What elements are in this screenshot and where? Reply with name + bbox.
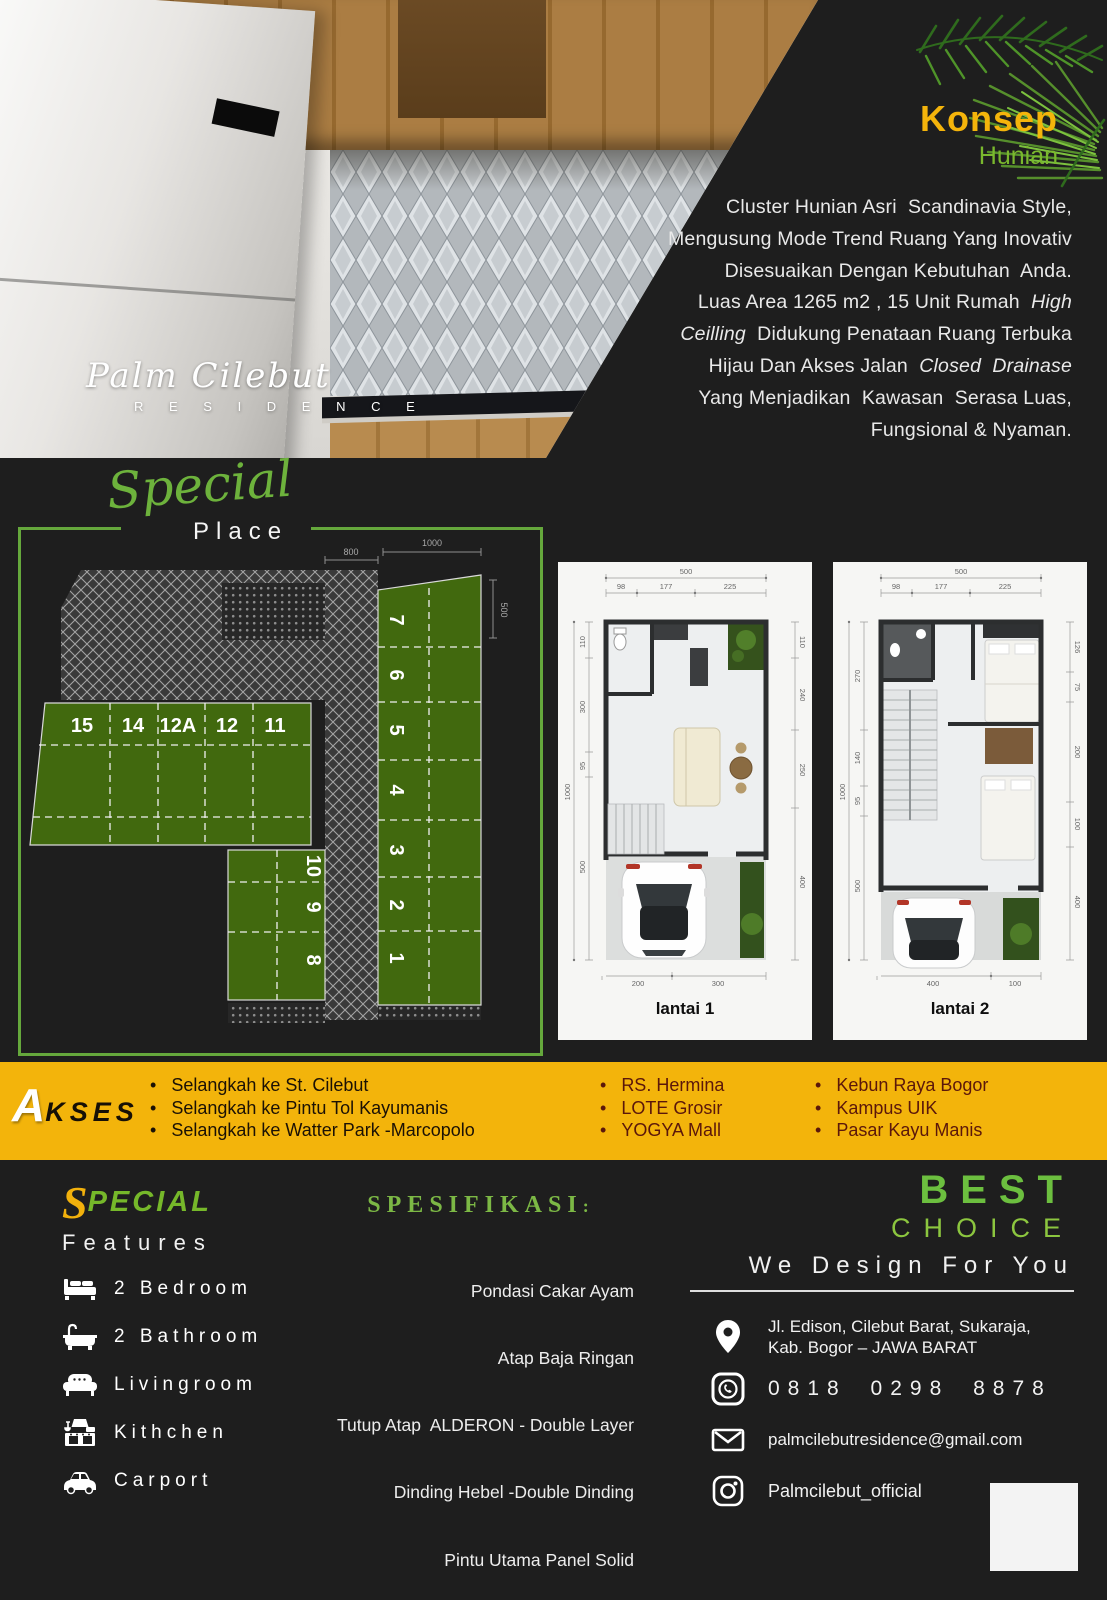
spec-item: Tutup Atap ALDERON - Double Layer bbox=[322, 1414, 634, 1436]
features-initial: S bbox=[62, 1177, 88, 1228]
contact-list: Jl. Edison, Cilebut Barat, Sukaraja, Kab… bbox=[690, 1316, 1074, 1511]
flyer-page: Palm Cilebut R E S I D E N C E Konsep Hu… bbox=[0, 0, 1107, 1600]
access-band: AKSES Selangkah ke St. Cilebut Selangkah… bbox=[0, 1062, 1107, 1160]
plot-label: 15 bbox=[71, 715, 93, 737]
specification-title-text: SPESIFIKASI bbox=[367, 1192, 582, 1218]
dim-label: 200 bbox=[1073, 746, 1082, 759]
car-top-view bbox=[618, 862, 710, 958]
konsep-title: Konsep bbox=[920, 98, 1058, 140]
dim-label: 400 bbox=[1073, 896, 1082, 909]
dim-label: 75 bbox=[1073, 683, 1082, 691]
access-list-2: RS. Hermina LOTE Grosir YOGYA Mall bbox=[600, 1074, 724, 1142]
feature-item: Livingroom bbox=[62, 1370, 262, 1400]
dim-label: 95 bbox=[578, 762, 587, 770]
dim-label: 177 bbox=[935, 582, 948, 591]
list-item: Kebun Raya Bogor bbox=[815, 1074, 988, 1097]
list-item: Selangkah ke Watter Park -Marcopolo bbox=[150, 1119, 475, 1142]
dim-label: 110 bbox=[798, 636, 807, 648]
mail-icon bbox=[710, 1420, 746, 1460]
dim-label: 225 bbox=[724, 582, 737, 591]
dim-label: 400 bbox=[798, 876, 807, 889]
paragraph-line: Cluster Hunian Asri Scandinavia Style, bbox=[592, 192, 1072, 224]
dim-label: 300 bbox=[712, 979, 725, 988]
dim-label: 500 bbox=[853, 880, 862, 893]
plot-label: 6 bbox=[385, 669, 407, 680]
dim-label: 100 bbox=[1073, 818, 1082, 831]
plot-label: 1 bbox=[385, 952, 407, 963]
plot-label: 9 bbox=[302, 901, 324, 912]
dim-label: 500 bbox=[955, 567, 968, 576]
features-title: SPECIAL bbox=[62, 1176, 262, 1229]
plot-label: 7 bbox=[385, 614, 407, 625]
specification-title: SPESIFIKASI: bbox=[322, 1192, 634, 1219]
site-plan-box: Special Place bbox=[18, 527, 543, 1056]
dim-label: 140 bbox=[853, 752, 862, 765]
paragraph-line: Yang Menjadikan Kawasan Serasa Luas, bbox=[592, 383, 1072, 415]
plot-label: 3 bbox=[385, 844, 407, 855]
list-item: Selangkah ke St. Cilebut bbox=[150, 1074, 475, 1097]
list-item: YOGYA Mall bbox=[600, 1119, 724, 1142]
dim-label: 126 bbox=[1073, 641, 1082, 654]
address-row: Jl. Edison, Cilebut Barat, Sukaraja, Kab… bbox=[710, 1316, 1074, 1358]
sofa-icon bbox=[62, 1370, 98, 1400]
address-line-1: Jl. Edison, Cilebut Barat, Sukaraja, bbox=[768, 1316, 1031, 1337]
konsep-paragraph: Cluster Hunian Asri Scandinavia Style, M… bbox=[592, 192, 1072, 446]
road-end bbox=[228, 1003, 325, 1023]
instagram-handle: Palmcilebut_official bbox=[768, 1481, 922, 1502]
dim-label: 95 bbox=[853, 797, 862, 805]
dim-label: 300 bbox=[578, 701, 587, 714]
list-item: Pasar Kayu Manis bbox=[815, 1119, 988, 1142]
plot-label: 11 bbox=[264, 715, 285, 737]
dim-label: 225 bbox=[999, 582, 1012, 591]
paragraph-text: Luas Area 1265 m2 , 15 Unit Rumah bbox=[698, 291, 1031, 313]
paragraph-text: Didukung Penataan Ruang Terbuka bbox=[746, 323, 1072, 345]
floorplan-panel-1: 500 98 177 225 1000 110 300 95 500 110 2… bbox=[558, 562, 812, 1040]
features-rest: PECIAL bbox=[88, 1186, 212, 1218]
dim-label: 1000 bbox=[838, 784, 847, 801]
car-top-view bbox=[893, 898, 975, 968]
brand-subtitle: R E S I D E N C E bbox=[134, 399, 426, 414]
feature-item: 2 Bathroom bbox=[62, 1322, 262, 1352]
feature-label: 2 Bedroom bbox=[114, 1278, 252, 1300]
feature-label: Livingroom bbox=[114, 1374, 257, 1396]
best-title: BEST bbox=[690, 1168, 1074, 1213]
access-list-1: Selangkah ke St. Cilebut Selangkah ke Pi… bbox=[150, 1074, 475, 1142]
dim-label: 270 bbox=[853, 670, 862, 683]
access-list-3: Kebun Raya Bogor Kampus UIK Pasar Kayu M… bbox=[815, 1074, 988, 1142]
akses-rest: KSES bbox=[45, 1097, 139, 1127]
paragraph-line: Mengusung Mode Trend Ruang Yang Inovativ bbox=[592, 224, 1072, 256]
paragraph-italic: Ceilling bbox=[680, 323, 746, 345]
dim-label: 98 bbox=[892, 582, 900, 591]
email-row: palmcilebutresidence@gmail.com bbox=[710, 1420, 1074, 1460]
dim-label: 100 bbox=[1009, 979, 1022, 988]
feature-item: Kithchen bbox=[62, 1418, 262, 1448]
special-script-title: Special bbox=[105, 450, 294, 521]
kitchen-icon bbox=[62, 1418, 98, 1448]
paragraph-line: Fungsional & Nyaman. bbox=[592, 415, 1072, 447]
list-item: RS. Hermina bbox=[600, 1074, 724, 1097]
paragraph-italic: High bbox=[1031, 291, 1072, 313]
feature-label: Carport bbox=[114, 1470, 212, 1492]
address-text: Jl. Edison, Cilebut Barat, Sukaraja, Kab… bbox=[768, 1316, 1031, 1358]
fridge bbox=[0, 0, 315, 496]
instagram-icon bbox=[710, 1471, 746, 1511]
dim-label: 177 bbox=[660, 582, 673, 591]
whatsapp-icon bbox=[710, 1369, 746, 1409]
spec-item: Pintu Utama Panel Solid bbox=[322, 1549, 634, 1571]
dim-label: 500 bbox=[680, 567, 693, 576]
list-item: Selangkah ke Pintu Tol Kayumanis bbox=[150, 1097, 475, 1120]
brand-logo: Palm Cilebut R E S I D E N C E bbox=[86, 356, 426, 414]
konsep-subtitle: Hunian bbox=[920, 142, 1058, 171]
dim-label: 800 bbox=[343, 547, 358, 557]
qr-placeholder bbox=[990, 1483, 1078, 1571]
akses-title: AKSES bbox=[12, 1078, 139, 1132]
plot-label: 14 bbox=[122, 715, 145, 737]
car-icon bbox=[62, 1466, 98, 1496]
tagline: We Design For You bbox=[690, 1252, 1074, 1292]
road-vertical bbox=[325, 570, 378, 1020]
address-line-2: Kab. Bogor – JAWA BARAT bbox=[768, 1337, 1031, 1358]
feature-label: 2 Bathroom bbox=[114, 1326, 262, 1348]
dim-label: 500 bbox=[499, 602, 509, 617]
plot-label: 12A bbox=[160, 715, 197, 737]
fridge-seam bbox=[0, 275, 295, 301]
spec-item: Atap Baja Ringan bbox=[322, 1347, 634, 1369]
paragraph-italic: Closed Drainase bbox=[919, 355, 1072, 377]
floorplan-label: lantai 2 bbox=[931, 999, 990, 1018]
plot-label: 5 bbox=[385, 724, 407, 735]
dim-label: 1000 bbox=[422, 538, 442, 548]
spec-item: Pondasi Cakar Ayam bbox=[322, 1280, 634, 1302]
dim-label: 1000 bbox=[563, 784, 572, 801]
spec-item: Dinding Hebel -Double Dinding bbox=[322, 1481, 634, 1503]
bathtub-icon bbox=[62, 1322, 98, 1352]
specification-colon: : bbox=[583, 1196, 589, 1216]
dim-label: 98 bbox=[617, 582, 625, 591]
bed-icon bbox=[62, 1274, 98, 1304]
road-median bbox=[222, 583, 325, 640]
paragraph-line: Disesuaikan Dengan Kebutuhan Anda. bbox=[592, 256, 1072, 288]
email-address: palmcilebutresidence@gmail.com bbox=[768, 1430, 1022, 1450]
features-subtitle: Features bbox=[62, 1230, 262, 1256]
plot-label: 10 bbox=[302, 855, 324, 877]
dim-label: 400 bbox=[927, 979, 940, 988]
plot-label: 12 bbox=[216, 715, 238, 737]
paragraph-line: Hijau Dan Akses Jalan Closed Drainase bbox=[592, 351, 1072, 383]
specification-section: SPESIFIKASI: Pondasi Cakar Ayam Atap Baj… bbox=[322, 1192, 634, 1600]
open-shelf bbox=[398, 0, 546, 118]
dim-label: 200 bbox=[632, 979, 645, 988]
plot-label: 8 bbox=[302, 954, 324, 965]
dim-label: 240 bbox=[798, 689, 807, 702]
features-section: SPECIAL Features 2 Bedroom 2 Bathroom bbox=[62, 1176, 262, 1496]
paragraph-line: Luas Area 1265 m2 , 15 Unit Rumah High bbox=[592, 287, 1072, 319]
floorplan-panel-2: 500 98 177 225 1000 270 140 95 500 126 7… bbox=[833, 562, 1087, 1040]
choice-title: CHOICE bbox=[690, 1213, 1074, 1244]
specification-list: Pondasi Cakar Ayam Atap Baja Ringan Tutu… bbox=[322, 1235, 634, 1600]
plot-label: 2 bbox=[385, 899, 407, 910]
brand-name: Palm Cilebut bbox=[86, 356, 426, 396]
paragraph-text: Hijau Dan Akses Jalan bbox=[709, 355, 920, 377]
akses-initial: A bbox=[12, 1079, 45, 1131]
location-pin-icon bbox=[710, 1317, 746, 1357]
konsep-heading: Konsep Hunian bbox=[920, 98, 1058, 171]
cabinet-shadow bbox=[330, 150, 825, 190]
feature-item: 2 Bedroom bbox=[62, 1274, 262, 1304]
dim-label: 500 bbox=[578, 861, 587, 874]
site-plan-map: 15 14 12A 12 11 10 9 8 7 6 5 4 3 2 1 bbox=[21, 530, 534, 1046]
paragraph-line: Ceilling Didukung Penataan Ruang Terbuka bbox=[592, 319, 1072, 351]
floorplan-label: lantai 1 bbox=[656, 999, 715, 1018]
plot-label: 4 bbox=[385, 784, 407, 796]
list-item: LOTE Grosir bbox=[600, 1097, 724, 1120]
phone-number: 0818 0298 8878 bbox=[768, 1377, 1052, 1401]
dim-label: 250 bbox=[798, 764, 807, 777]
list-item: Kampus UIK bbox=[815, 1097, 988, 1120]
feature-item: Carport bbox=[62, 1466, 262, 1496]
phone-row: 0818 0298 8878 bbox=[710, 1369, 1074, 1409]
contact-section: BEST CHOICE We Design For You Jl. Edison… bbox=[690, 1168, 1074, 1522]
dim-label: 110 bbox=[578, 636, 587, 648]
fridge-handle bbox=[212, 98, 280, 137]
feature-label: Kithchen bbox=[114, 1422, 228, 1444]
